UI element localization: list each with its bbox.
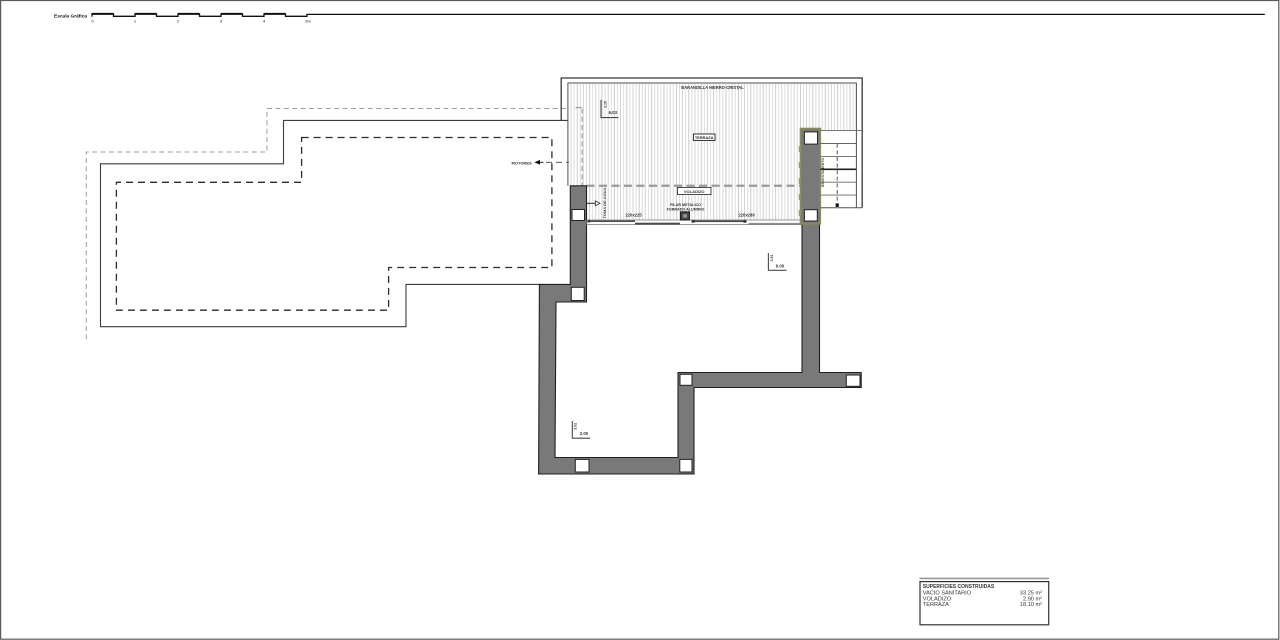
- svg-text:FORRADO ALUMINIO: FORRADO ALUMINIO: [667, 207, 705, 211]
- svg-text:2.00: 2.00: [580, 431, 589, 436]
- svg-text:SUPERFICIES CONSTRUIDAS: SUPERFICIES CONSTRUIDAS: [923, 584, 995, 590]
- svg-text:6.03: 6.03: [609, 110, 618, 115]
- svg-text:TERRAZA: TERRAZA: [923, 602, 949, 608]
- svg-text:MOTORES: MOTORES: [512, 160, 532, 165]
- svg-text:18.10 m²: 18.10 m²: [1020, 602, 1042, 608]
- svg-text:3.91: 3.91: [770, 255, 774, 262]
- svg-text:3.15: 3.15: [604, 101, 608, 108]
- svg-text:220x289: 220x289: [738, 212, 755, 217]
- svg-text:6.00: 6.00: [776, 263, 785, 268]
- svg-text:220x225: 220x225: [625, 212, 642, 217]
- svg-text:BARANDILLA HIERRO-CRISTAL: BARANDILLA HIERRO-CRISTAL: [681, 85, 744, 90]
- svg-text:Escala Gráfica: Escala Gráfica: [54, 13, 87, 19]
- svg-text:TERRAZA: TERRAZA: [695, 135, 714, 140]
- svg-text:5m: 5m: [305, 19, 311, 24]
- svg-text:TOMA DE AGUA: TOMA DE AGUA: [602, 187, 607, 218]
- svg-text:VOLADIZO: VOLADIZO: [684, 189, 705, 194]
- svg-text:3.02: 3.02: [574, 423, 578, 430]
- svg-text:PILAR METALICO: PILAR METALICO: [670, 203, 701, 207]
- svg-text:REVESTIMIENTO: REVESTIMIENTO: [821, 158, 825, 187]
